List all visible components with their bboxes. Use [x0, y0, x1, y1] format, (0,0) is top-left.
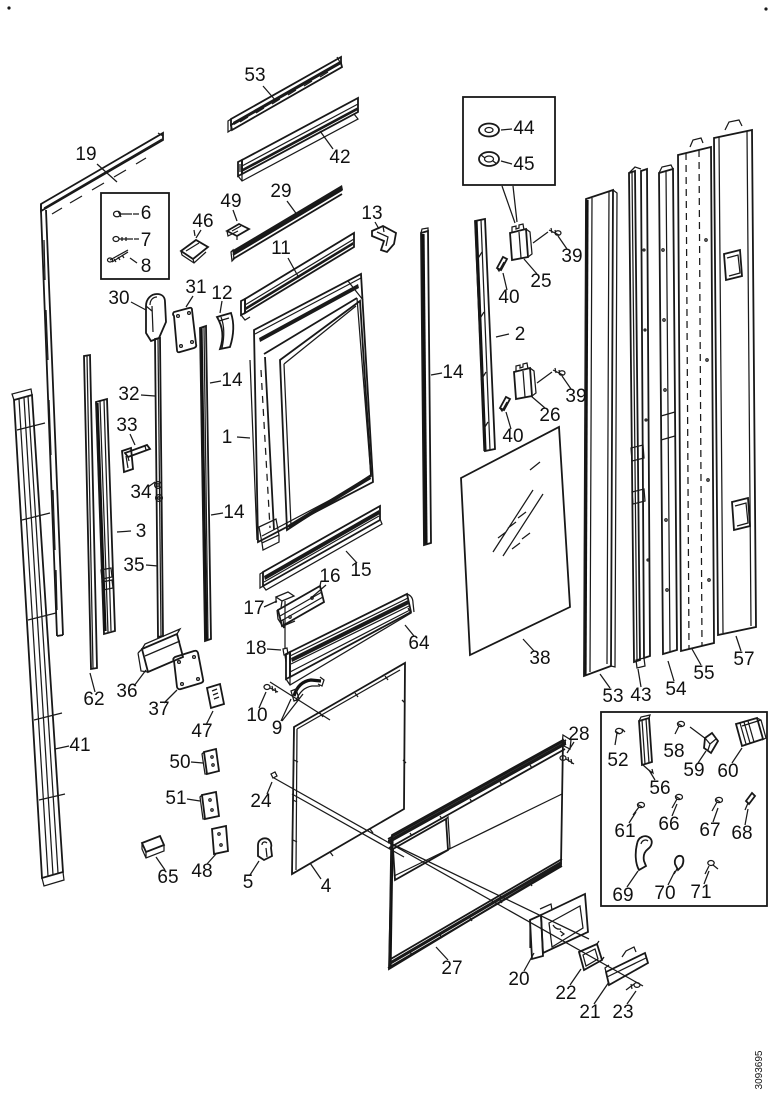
svg-text:56: 56 [649, 778, 670, 799]
svg-text:3093695: 3093695 [754, 1050, 765, 1089]
svg-text:59: 59 [683, 760, 704, 781]
svg-text:33: 33 [116, 415, 137, 436]
svg-text:51: 51 [165, 788, 186, 809]
svg-text:30: 30 [108, 288, 129, 309]
svg-text:53: 53 [244, 65, 265, 86]
svg-text:9: 9 [272, 718, 283, 739]
svg-text:43: 43 [630, 685, 651, 706]
svg-text:47: 47 [191, 721, 212, 742]
svg-text:28: 28 [568, 724, 589, 745]
svg-text:23: 23 [612, 1002, 633, 1023]
svg-text:52: 52 [607, 750, 628, 771]
svg-text:36: 36 [116, 681, 137, 702]
svg-text:60: 60 [717, 761, 738, 782]
svg-text:68: 68 [731, 823, 752, 844]
svg-text:34: 34 [130, 482, 152, 503]
svg-text:71: 71 [690, 882, 711, 903]
svg-text:41: 41 [69, 735, 90, 756]
svg-text:44: 44 [513, 118, 535, 139]
svg-text:69: 69 [612, 885, 633, 906]
svg-text:54: 54 [665, 679, 687, 700]
svg-text:42: 42 [329, 147, 350, 168]
svg-text:27: 27 [441, 958, 462, 979]
svg-text:16: 16 [319, 566, 340, 587]
svg-text:15: 15 [350, 560, 371, 581]
svg-text:29: 29 [270, 181, 291, 202]
svg-text:14: 14 [442, 362, 464, 383]
svg-text:35: 35 [123, 555, 144, 576]
svg-text:17: 17 [243, 598, 264, 619]
svg-text:22: 22 [555, 983, 576, 1004]
svg-text:40: 40 [502, 426, 523, 447]
svg-text:61: 61 [614, 821, 635, 842]
svg-text:31: 31 [185, 277, 206, 298]
svg-text:64: 64 [408, 633, 430, 654]
svg-text:3: 3 [136, 521, 147, 542]
svg-text:39: 39 [561, 246, 582, 267]
svg-text:40: 40 [498, 287, 519, 308]
svg-text:1: 1 [222, 427, 233, 448]
svg-text:7: 7 [141, 230, 152, 251]
svg-text:66: 66 [658, 814, 679, 835]
svg-text:50: 50 [169, 752, 190, 773]
svg-text:14: 14 [221, 370, 243, 391]
svg-text:5: 5 [243, 872, 254, 893]
svg-text:24: 24 [250, 791, 272, 812]
svg-text:26: 26 [539, 405, 560, 426]
svg-text:39: 39 [565, 386, 586, 407]
svg-text:65: 65 [157, 867, 178, 888]
svg-text:2: 2 [515, 324, 526, 345]
svg-text:10: 10 [246, 705, 267, 726]
svg-text:32: 32 [118, 384, 139, 405]
svg-text:55: 55 [693, 663, 714, 684]
svg-text:53: 53 [602, 686, 623, 707]
svg-text:67: 67 [699, 820, 720, 841]
svg-text:58: 58 [663, 741, 684, 762]
svg-text:21: 21 [579, 1002, 600, 1023]
svg-text:49: 49 [220, 191, 241, 212]
svg-text:46: 46 [192, 211, 213, 232]
svg-text:70: 70 [654, 883, 675, 904]
svg-text:38: 38 [529, 648, 550, 669]
svg-text:13: 13 [361, 203, 382, 224]
svg-text:19: 19 [75, 144, 96, 165]
svg-text:14: 14 [223, 502, 245, 523]
svg-text:6: 6 [141, 203, 152, 224]
svg-text:45: 45 [513, 154, 534, 175]
svg-text:62: 62 [83, 689, 104, 710]
svg-text:37: 37 [148, 699, 169, 720]
svg-text:18: 18 [245, 638, 266, 659]
svg-text:4: 4 [321, 876, 332, 897]
svg-text:48: 48 [191, 861, 212, 882]
svg-text:11: 11 [271, 238, 291, 259]
svg-text:12: 12 [211, 283, 232, 304]
svg-text:57: 57 [733, 649, 754, 670]
svg-text:8: 8 [141, 256, 152, 277]
svg-text:20: 20 [508, 969, 529, 990]
svg-text:25: 25 [530, 271, 551, 292]
